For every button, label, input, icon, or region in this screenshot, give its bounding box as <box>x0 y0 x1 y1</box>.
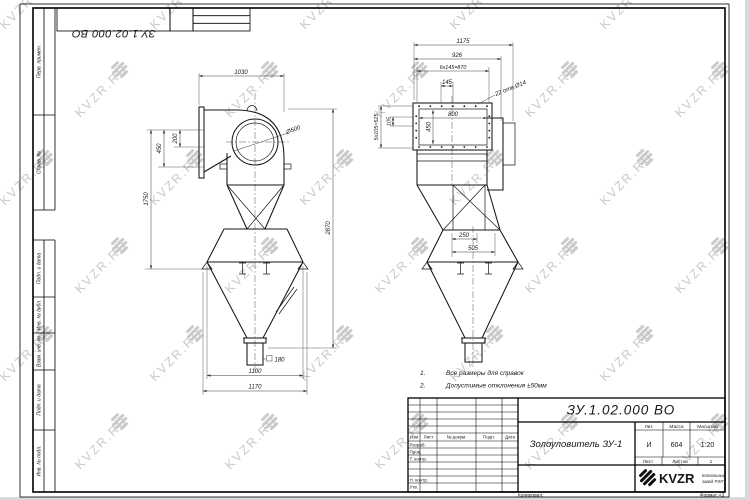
tb-scale-label: Масштаб <box>697 424 718 430</box>
tb-col-data: Дата <box>505 435 515 440</box>
format-label: Формат А3 <box>700 493 725 499</box>
tb-mass-value: 604 <box>671 442 683 449</box>
dim-side-870: 6x145=870 <box>440 65 467 71</box>
dim-side-1175: 1175 <box>457 39 471 45</box>
tb-mass-label: Масса <box>669 424 684 430</box>
margin-label-inv-dubl: Инв. № дубл. <box>37 300 43 331</box>
dim-side-450: 450 <box>427 121 433 132</box>
margin-label-perv: Перв. примен. <box>37 45 43 78</box>
dim-front-200: 200 <box>173 133 179 145</box>
tb-row-nkontr: Н. контр. <box>410 478 429 483</box>
tb-sheets-label: Листов <box>672 459 688 465</box>
copied-label: Копировал: <box>518 493 543 499</box>
margin-label-sprav: Справ. № <box>37 151 43 174</box>
kvzr-logo-sub2: завод РЭП <box>701 479 724 484</box>
dim-side-105: 105 <box>387 116 393 126</box>
tb-part-name: Золоуловитель ЗУ-1 <box>530 439 623 450</box>
dim-front-1030: 1030 <box>234 70 248 76</box>
dim-side-250: 250 <box>458 233 470 239</box>
top-designation: ЗУ.1.02.000 ВО <box>71 27 155 39</box>
tb-row-prov: Пров. <box>410 450 422 455</box>
dim-front-180: 180 <box>275 358 286 364</box>
margin-label-vzam: Взам. инв. № <box>37 335 43 367</box>
note-1-num: 1. <box>420 370 426 377</box>
dim-front-450: 450 <box>157 143 163 154</box>
dim-side-145: 145 <box>442 80 453 86</box>
note-1-text: Все размеры для справок <box>446 369 525 377</box>
tb-lit-label: Лит. <box>645 424 654 430</box>
dim-front-1750: 1750 <box>144 192 150 206</box>
dim-front-1170: 1170 <box>249 385 263 391</box>
tb-col-list: Лист <box>424 435 434 440</box>
tb-row-tkontr: Т. контр. <box>410 457 428 462</box>
tb-col-izm: Изм <box>410 435 418 440</box>
tb-col-doc: № докум. <box>447 435 467 440</box>
dim-side-800: 800 <box>448 112 459 118</box>
tb-col-podp: Подп. <box>483 435 495 440</box>
kvzr-logo-sub1: Котельный <box>702 473 726 478</box>
tb-lit-value: И <box>646 442 651 449</box>
note-2-num: 2. <box>419 383 426 390</box>
margin-label-podp1: Подп. и дата <box>37 253 43 285</box>
drawing-canvas: KVZR.RUKVZR.RUKVZR.RUKVZR.RUKVZR.RUKVZR.… <box>0 0 750 500</box>
tb-scale-value: 1:20 <box>701 442 715 449</box>
tb-sheet-label: Лист <box>643 459 654 465</box>
dim-front-2870: 2870 <box>326 221 332 236</box>
tb-designation: ЗУ.1.02.000 ВО <box>567 403 676 418</box>
margin-label-podp2: Подп. и дата <box>37 384 43 416</box>
dim-front-1100: 1100 <box>249 369 263 375</box>
tb-row-utv: Утв. <box>410 485 419 490</box>
dim-side-926: 926 <box>452 53 463 59</box>
kvzr-logo-text: KVZR <box>659 471 695 486</box>
dim-side-525: 5x105=525 <box>374 113 380 141</box>
margin-label-inv-podl: Инв. № подл. <box>37 445 43 476</box>
tb-sheets-value: 1 <box>710 459 713 465</box>
note-2-text: Допустимые отклонения ±50мм <box>445 383 547 390</box>
dim-side-505: 505 <box>468 246 479 252</box>
drawing-sheet: KVZR.RUKVZR.RUKVZR.RUKVZR.RUKVZR.RUKVZR.… <box>0 0 750 500</box>
tb-row-razrab: Разраб. <box>410 443 426 448</box>
